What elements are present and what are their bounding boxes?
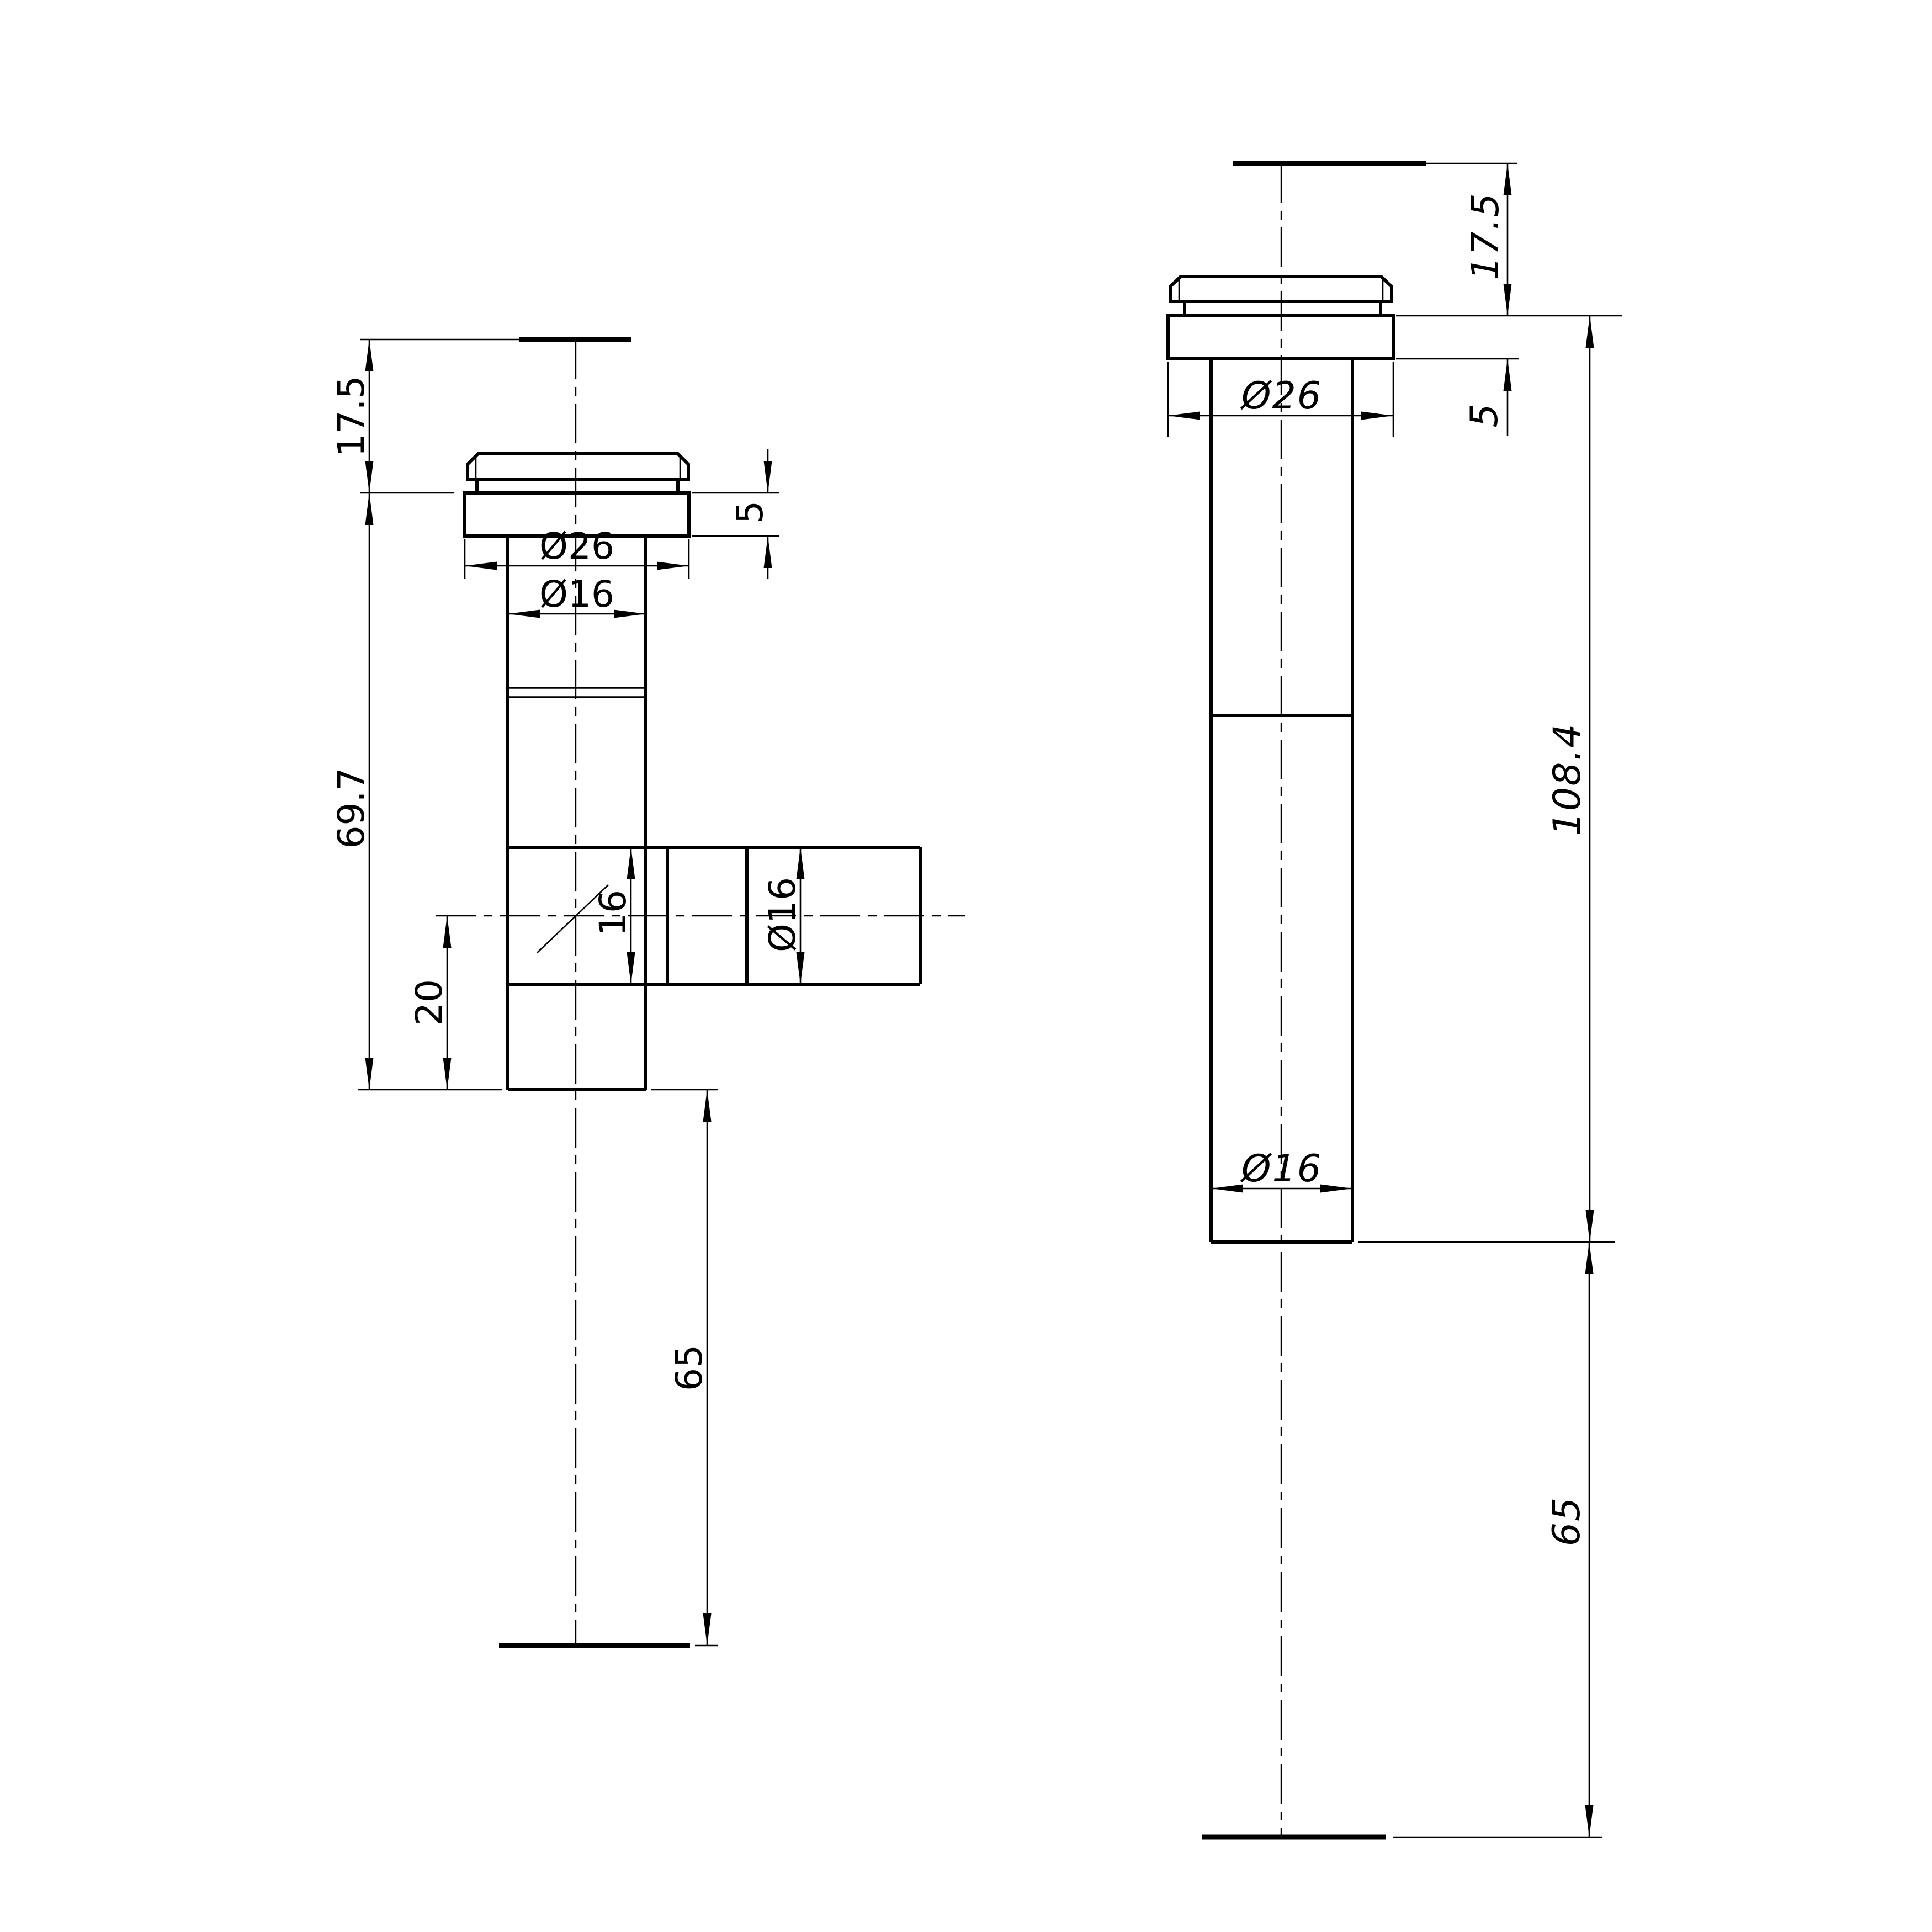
left-view: 17.5 69.7 20 65 Ø26 Ø16 16 Ø16 [330,339,965,1646]
right-view: 17.5 5 108.4 Ø26 Ø16 65 [1168,163,1622,1837]
dim-label-108-4: 108.4 [1546,723,1589,836]
dim-label-dia26: Ø26 [1240,374,1322,418]
dim-label-dia16-branch: Ø16 [761,877,804,952]
dim-label-16: 16 [592,890,634,936]
cap-outline [468,454,688,480]
technical-drawing-canvas: 17.5 69.7 20 65 Ø26 Ø16 16 Ø16 [0,0,1932,1932]
right-view-dimensions: 17.5 5 108.4 Ø26 Ø16 65 [1168,163,1622,1837]
dim-label-69-7: 69.7 [330,768,373,849]
dim-label-dia26: Ø26 [539,525,614,567]
dim-label-20: 20 [408,979,450,1026]
dim-label-5-right: 5 [1463,402,1506,427]
dim-label-17-5: 17.5 [1464,192,1508,280]
drawing-page: 17.5 69.7 20 65 Ø26 Ø16 16 Ø16 [0,0,1932,1932]
right-view-part-outline [1168,163,1602,1837]
dim-label-dia16: Ø16 [539,573,614,615]
dim-label-5-left: 5 [729,501,771,524]
dim-label-65-right: 65 [1545,1496,1589,1547]
dim-label-dia16: Ø16 [1240,1147,1322,1191]
left-view-dimensions: 17.5 69.7 20 65 Ø26 Ø16 16 Ø16 [330,339,804,1646]
dim-label-17-5: 17.5 [330,376,373,457]
dim-label-65-left: 65 [668,1345,710,1391]
